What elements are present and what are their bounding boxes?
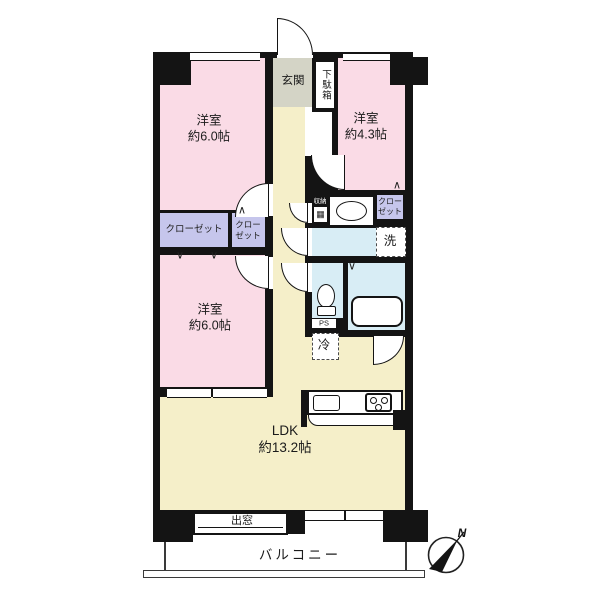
entrance-door-swing-icon bbox=[277, 18, 313, 55]
washbasin-icon bbox=[336, 201, 367, 221]
burner-icon bbox=[370, 397, 377, 404]
bathtub-icon bbox=[351, 296, 403, 327]
entrance-step bbox=[305, 107, 332, 156]
stove-icon bbox=[365, 393, 392, 412]
room-size: 約6.0帖 bbox=[189, 318, 231, 334]
closet-small-label: クロー ゼット bbox=[235, 219, 261, 240]
storage-unit: ▦ bbox=[314, 207, 327, 222]
closet-label-line: ゼット bbox=[378, 207, 402, 217]
closet-ne-label: クロー ゼット bbox=[378, 197, 402, 217]
room-name: 洋室 bbox=[188, 113, 230, 129]
compass-icon: N bbox=[422, 518, 480, 582]
closet-label-line: クロー bbox=[235, 219, 261, 230]
bedroom-ne-label: 洋室 約4.3帖 bbox=[345, 111, 387, 142]
hallway-lower-floor bbox=[273, 197, 305, 397]
washer-label: 洗 bbox=[384, 234, 397, 250]
entrance-label: 玄関 bbox=[282, 74, 305, 88]
room-name: 洋室 bbox=[345, 111, 387, 127]
room-name: LDK bbox=[258, 423, 311, 440]
room-size: 約4.3帖 bbox=[345, 127, 387, 143]
bay-window-label: 出窓 bbox=[231, 515, 253, 529]
hallway-upper-floor bbox=[273, 107, 305, 197]
toilet-tank-icon bbox=[317, 306, 336, 316]
folding-door-icon: ∨ bbox=[176, 251, 184, 262]
shoe-cabinet-label: 下駄箱 bbox=[318, 69, 332, 101]
compass-north-label: N bbox=[458, 526, 467, 540]
fridge-label: 冷 bbox=[318, 338, 331, 354]
corner-block-ne bbox=[390, 57, 428, 85]
kitchen-sink-icon bbox=[313, 395, 340, 411]
window-icon bbox=[213, 388, 267, 398]
balcony-label: バルコニー bbox=[259, 548, 341, 565]
balcony-rail-left bbox=[164, 542, 166, 572]
window-mullion bbox=[344, 511, 346, 520]
window-icon bbox=[190, 52, 260, 61]
toilet-icon bbox=[317, 284, 335, 308]
folding-door-icon: ∨ bbox=[348, 262, 356, 273]
closet-label-line: ゼット bbox=[235, 230, 261, 241]
storage-label: 収納 bbox=[314, 198, 327, 206]
folding-door-icon: ∧ bbox=[393, 181, 401, 192]
room-size: 約6.0帖 bbox=[188, 129, 230, 145]
kitchen-corner-wall bbox=[393, 410, 413, 430]
pipe-space-label: PS bbox=[319, 318, 329, 327]
wall-block-bottom-mid bbox=[288, 511, 305, 534]
balcony-door-icon bbox=[305, 510, 383, 521]
floor-plan: 下駄箱 ▦ 洋室 約6.0帖 洋室 約4.3帖 洋室 約6.0帖 LDK 約13 bbox=[0, 0, 600, 600]
balcony-slab bbox=[143, 570, 425, 578]
burner-icon bbox=[381, 397, 388, 404]
balcony-rail-right bbox=[405, 542, 407, 572]
shoe-cabinet: 下駄箱 bbox=[316, 62, 334, 108]
bedroom-nw-label: 洋室 約6.0帖 bbox=[188, 113, 230, 144]
bedroom-w-label: 洋室 約6.0帖 bbox=[189, 302, 231, 333]
room-name: 洋室 bbox=[189, 302, 231, 318]
closet-large-label: クローゼット bbox=[165, 224, 222, 236]
ldk-label: LDK 約13.2帖 bbox=[258, 423, 311, 457]
burner-icon bbox=[375, 404, 382, 411]
storage-glyph-icon: ▦ bbox=[316, 209, 325, 220]
closet-label-line: クロー bbox=[378, 197, 402, 207]
corner-block-sw bbox=[153, 510, 193, 542]
folding-door-icon: ∨ bbox=[210, 251, 218, 262]
window-icon bbox=[343, 53, 390, 61]
room-size: 約13.2帖 bbox=[258, 440, 311, 457]
corner-block-nw bbox=[153, 52, 191, 85]
kitchen-counter-edge bbox=[308, 414, 403, 426]
folding-door-icon: ∧ bbox=[238, 206, 246, 217]
window-icon bbox=[167, 388, 211, 398]
